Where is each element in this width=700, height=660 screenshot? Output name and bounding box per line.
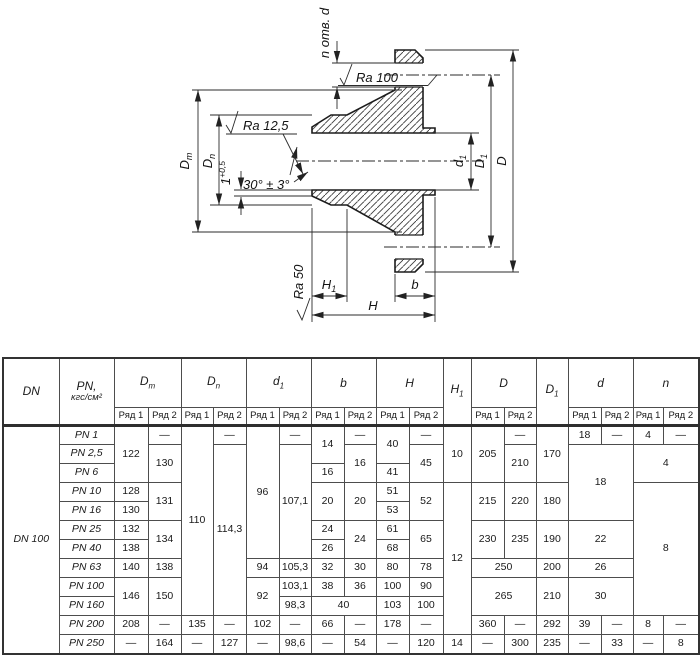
surface-roughness-icon — [226, 111, 238, 133]
ra125-label: Ra 12,5 — [243, 118, 289, 133]
table-row-pn1: DN 100 PN 1 122 — 110 — 96 — 14 — 40 — 1… — [3, 426, 699, 445]
table-cell: 26 — [568, 559, 633, 578]
dm-label: Dm — [177, 152, 194, 169]
table-cell: — — [279, 616, 311, 635]
flange-section-drawing: Dm Dn 1+0,5 30° ± 3° Ra 12,5 n отв. d Ra… — [0, 0, 700, 354]
table-cell: 107,1 — [279, 445, 311, 559]
table-cell: 132 — [114, 521, 148, 540]
table-cell: 65 — [409, 521, 443, 559]
table-cell: 30 — [568, 578, 633, 616]
table-cell: 150 — [148, 578, 181, 616]
table-cell: — — [663, 426, 699, 445]
table-cell: 8 — [663, 635, 699, 654]
table-cell: 122 — [114, 426, 148, 483]
table-cell: 61 — [376, 521, 409, 540]
table-cell: — — [246, 635, 279, 654]
table-cell: 68 — [376, 540, 409, 559]
table-cell: 130 — [148, 445, 181, 483]
table-cell: — — [409, 616, 443, 635]
header-dn-col: Dn — [181, 358, 246, 408]
table-cell: — — [213, 616, 246, 635]
table-cell: 51 — [376, 483, 409, 502]
table-cell: — — [181, 635, 213, 654]
table-cell: 164 — [148, 635, 181, 654]
header-d-1: D1 — [536, 358, 568, 426]
table-cell: 36 — [344, 578, 376, 597]
table-cell: 40 — [376, 426, 409, 464]
table-cell: 14 — [311, 426, 344, 464]
header-dn: DN — [3, 358, 59, 426]
dn-label: Dn — [200, 154, 217, 168]
table-cell: 235 — [504, 521, 536, 559]
flange-lower-half — [312, 190, 435, 272]
table-cell: 38 — [311, 578, 344, 597]
dd1-label: D1 — [472, 154, 489, 168]
table-row-pn200: PN 200 208 — 135 — 102 — 66 — 178 — 360 … — [3, 616, 699, 635]
table-cell: 92 — [246, 578, 279, 616]
table-cell: 98,6 — [279, 635, 311, 654]
table-cell: 18 — [568, 426, 601, 445]
pn-row-label: PN 250 — [59, 635, 114, 654]
ra50-label: Ra 50 — [291, 264, 306, 299]
header-d1: d1 — [246, 358, 311, 408]
table-row-pn25: PN 25 132 134 24 24 61 65 230 235 190 22 — [3, 521, 699, 540]
table-cell: — — [504, 426, 536, 445]
table-row-pn100: PN 100 146 150 92 103,1 38 36 100 90 265… — [3, 578, 699, 597]
subheader-ryad: Ряд 1 — [181, 408, 213, 426]
table-cell: 52 — [409, 483, 443, 521]
table-cell: 18 — [568, 445, 633, 521]
subheader-ryad: Ряд 1 — [114, 408, 148, 426]
table-cell: 215 — [471, 483, 504, 521]
pn-row-label: PN 63 — [59, 559, 114, 578]
table-cell: 100 — [409, 597, 443, 616]
table-cell: 130 — [114, 502, 148, 521]
table-cell: 4 — [633, 445, 699, 483]
table-cell: — — [148, 426, 181, 445]
table-cell: 26 — [311, 540, 344, 559]
table-cell: — — [344, 616, 376, 635]
table-cell: 134 — [148, 521, 181, 559]
subheader-ryad: Ряд 1 — [311, 408, 344, 426]
table-cell: — — [114, 635, 148, 654]
header-b: b — [311, 358, 376, 408]
table-cell: 200 — [536, 559, 568, 578]
subheader-ryad: Ряд 1 — [471, 408, 504, 426]
table-cell: 100 — [376, 578, 409, 597]
table-cell: 138 — [148, 559, 181, 578]
header-dm: Dm — [114, 358, 181, 408]
table-cell: 32 — [311, 559, 344, 578]
table-cell: 53 — [376, 502, 409, 521]
table-cell: — — [601, 426, 633, 445]
table-cell: 94 — [246, 559, 279, 578]
subheader-ryad: Ряд 1 — [633, 408, 663, 426]
table-cell: 205 — [471, 426, 504, 483]
table-cell: 300 — [504, 635, 536, 654]
table-cell: 98,3 — [279, 597, 311, 616]
table-cell: 54 — [344, 635, 376, 654]
header-n: n — [633, 358, 699, 408]
table-cell: 102 — [246, 616, 279, 635]
subheader-ryad: Ряд 2 — [344, 408, 376, 426]
surface-roughness-icon — [297, 298, 310, 320]
table-cell: 80 — [376, 559, 409, 578]
table-cell: 131 — [148, 483, 181, 521]
pn-row-label: PN 160 — [59, 597, 114, 616]
pn-row-label: PN 1 — [59, 426, 114, 445]
subheader-ryad: Ряд 2 — [279, 408, 311, 426]
table-cell: 110 — [181, 426, 213, 616]
table-cell: 20 — [344, 483, 376, 521]
table-cell: 135 — [181, 616, 213, 635]
table-cell: 103 — [376, 597, 409, 616]
table-cell: 16 — [311, 464, 344, 483]
table-cell: 210 — [504, 445, 536, 483]
table-cell: — — [409, 426, 443, 445]
table-cell: — — [213, 426, 246, 445]
table-cell: 90 — [409, 578, 443, 597]
pn-row-label: PN 6 — [59, 464, 114, 483]
table-row-pn2-5: PN 2,5 130 114,3 107,1 16 45 210 18 4 — [3, 445, 699, 464]
table-cell: 96 — [246, 426, 279, 559]
table-cell: 140 — [114, 559, 148, 578]
table-cell: 178 — [376, 616, 409, 635]
table-cell: 20 — [311, 483, 344, 521]
table-cell: 105,3 — [279, 559, 311, 578]
table-cell: 138 — [114, 540, 148, 559]
subheader-ryad: Ряд 2 — [213, 408, 246, 426]
subheader-ryad: Ряд 1 — [246, 408, 279, 426]
n-holes-label: n отв. d — [317, 7, 332, 58]
table-cell: — — [663, 616, 699, 635]
subheader-ryad: Ряд 2 — [663, 408, 699, 426]
table-cell: 292 — [536, 616, 568, 635]
table-cell: 146 — [114, 578, 148, 616]
header-d-big: D — [471, 358, 536, 408]
table-cell: 8 — [633, 616, 663, 635]
table-cell: 127 — [213, 635, 246, 654]
b-label: b — [411, 277, 418, 292]
header-h1: H1 — [443, 358, 471, 426]
subheader-ryad: Ряд 2 — [601, 408, 633, 426]
header-pn: PN, кгс/см² — [59, 358, 114, 426]
table-cell: 16 — [344, 445, 376, 483]
pn-row-label: PN 40 — [59, 540, 114, 559]
table-cell: 24 — [311, 521, 344, 540]
table-cell: 30 — [344, 559, 376, 578]
table-cell: 230 — [471, 521, 504, 559]
h1-label: H1 — [322, 277, 336, 294]
table-cell: 4 — [633, 426, 663, 445]
table-cell: 22 — [568, 521, 633, 559]
pn-row-label: PN 16 — [59, 502, 114, 521]
table-row-pn250: PN 250 — 164 — 127 — 98,6 — 54 — 120 14 … — [3, 635, 699, 654]
table-cell: 33 — [601, 635, 633, 654]
header-pn-line1: PN, — [60, 380, 114, 393]
table-cell: 45 — [409, 445, 443, 483]
pn-row-label: PN 25 — [59, 521, 114, 540]
table-cell: 120 — [409, 635, 443, 654]
table-cell: 190 — [536, 521, 568, 559]
table-cell: 180 — [536, 483, 568, 521]
drawing-labels: Dm Dn 1+0,5 30° ± 3° Ra 12,5 n отв. d Ra… — [177, 7, 509, 313]
table-cell: 39 — [568, 616, 601, 635]
table-cell: 14 — [443, 635, 471, 654]
table-cell: — — [504, 616, 536, 635]
header-pn-line2: кгс/см² — [60, 393, 114, 403]
table-cell: 40 — [311, 597, 376, 616]
subheader-ryad: Ряд 1 — [568, 408, 601, 426]
surface-roughness-icon — [340, 64, 352, 85]
flange-dimensions-table: DN PN, кгс/см² Dm Dn d1 b H H1 D D1 d n … — [2, 357, 700, 655]
table-cell: 41 — [376, 464, 409, 483]
pn-row-label: PN 2,5 — [59, 445, 114, 464]
table-cell: — — [376, 635, 409, 654]
subheader-ryad: Ряд 2 — [409, 408, 443, 426]
ra100-label: Ra 100 — [356, 70, 399, 85]
table-cell: 220 — [504, 483, 536, 521]
chamfer-angle-label: 30° ± 3° — [243, 177, 289, 192]
table-cell: 114,3 — [213, 445, 246, 616]
table-cell: — — [568, 635, 601, 654]
table-cell: — — [344, 426, 376, 445]
table-cell: — — [601, 616, 633, 635]
table-cell: 235 — [536, 635, 568, 654]
table-cell: 24 — [344, 521, 376, 559]
table-cell: 210 — [536, 578, 568, 616]
header-h: H — [376, 358, 443, 408]
table-cell: 78 — [409, 559, 443, 578]
subheader-ryad: Ряд 2 — [504, 408, 536, 426]
header-d: d — [568, 358, 633, 408]
table-cell: 250 — [471, 559, 536, 578]
table-cell: 265 — [471, 578, 536, 616]
table-cell: 10 — [443, 426, 471, 483]
table-cell: — — [148, 616, 181, 635]
table-cell: — — [279, 426, 311, 445]
table-cell: — — [633, 635, 663, 654]
table-cell: — — [311, 635, 344, 654]
table-cell: 360 — [471, 616, 504, 635]
table-cell: 8 — [633, 483, 699, 616]
land-dimension-label: 1+0,5 — [217, 161, 233, 185]
pn-row-label: PN 10 — [59, 483, 114, 502]
table-cell: 66 — [311, 616, 344, 635]
table-row-pn63: PN 63 140 138 94 105,3 32 30 80 78 250 2… — [3, 559, 699, 578]
pn-row-label: PN 100 — [59, 578, 114, 597]
table-cell: 103,1 — [279, 578, 311, 597]
flange-standard-page: Dm Dn 1+0,5 30° ± 3° Ra 12,5 n отв. d Ra… — [0, 0, 700, 660]
subheader-ryad: Ряд 2 — [148, 408, 181, 426]
table-cell: 170 — [536, 426, 568, 483]
d-outer-label: D — [494, 156, 509, 165]
table-cell: — — [471, 635, 504, 654]
subheader-ryad: Ряд 1 — [376, 408, 409, 426]
dn-value-cell: DN 100 — [3, 426, 59, 654]
table-cell: 12 — [443, 483, 471, 635]
d1-label: d1 — [451, 155, 468, 167]
table-cell: 208 — [114, 616, 148, 635]
pn-row-label: PN 200 — [59, 616, 114, 635]
h-label: H — [368, 298, 378, 313]
table-cell: 128 — [114, 483, 148, 502]
